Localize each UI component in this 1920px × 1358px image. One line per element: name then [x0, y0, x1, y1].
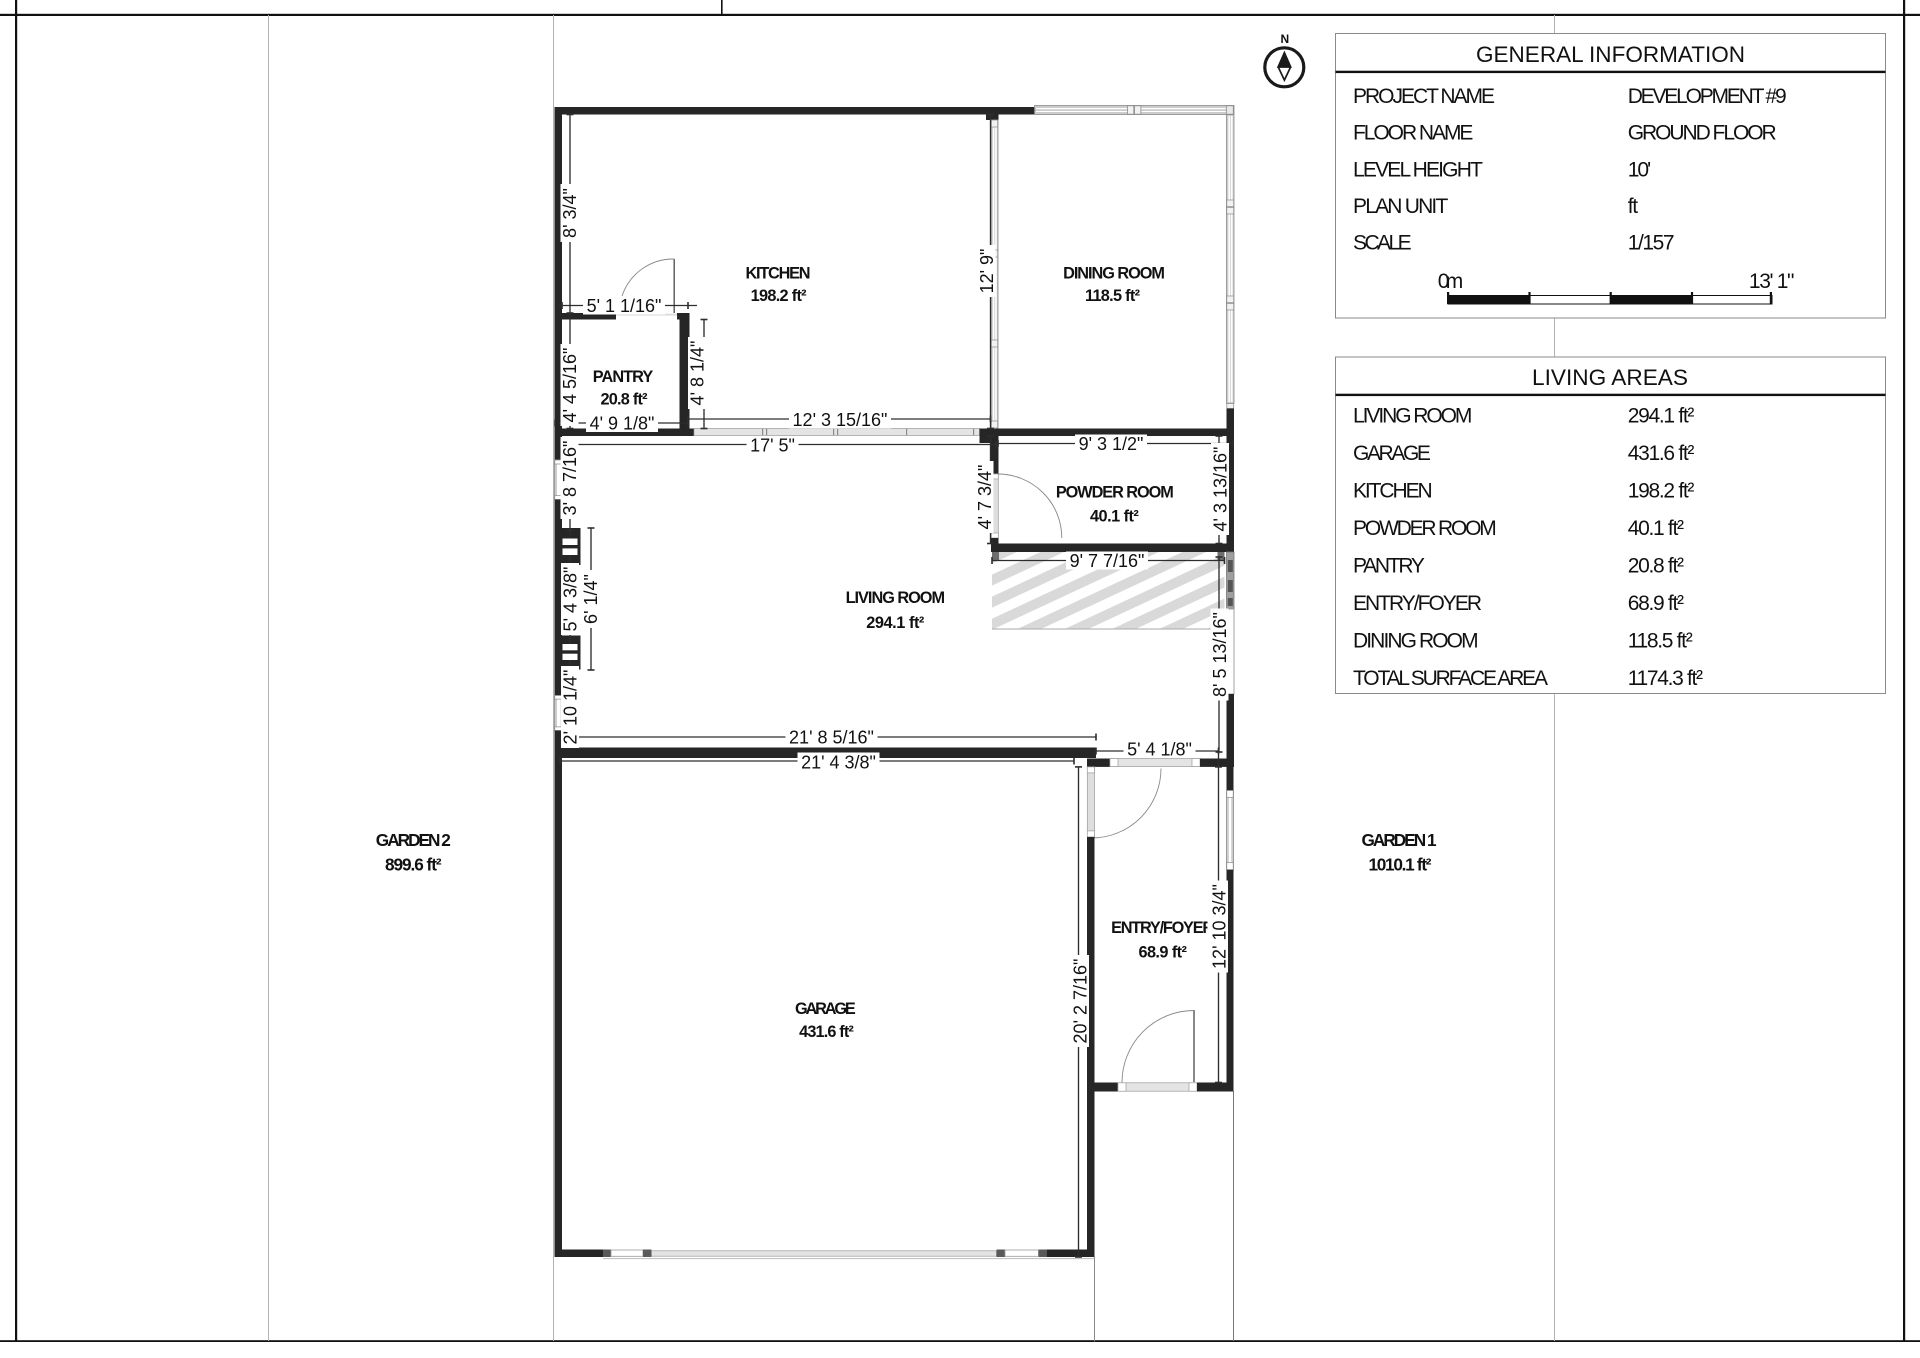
- svg-text:118.5 ft²: 118.5 ft²: [1085, 287, 1141, 305]
- svg-text:GARDEN 2: GARDEN 2: [376, 830, 451, 850]
- svg-text:GARAGE: GARAGE: [795, 1000, 856, 1018]
- svg-text:GENERAL INFORMATION: GENERAL INFORMATION: [1476, 42, 1745, 67]
- svg-text:5' 4 3/8": 5' 4 3/8": [560, 567, 580, 632]
- svg-text:DEVELOPMENT #9: DEVELOPMENT #9: [1628, 85, 1787, 108]
- svg-text:LEVEL HEIGHT: LEVEL HEIGHT: [1353, 158, 1483, 181]
- svg-text:DINING ROOM: DINING ROOM: [1063, 265, 1165, 283]
- svg-text:LIVING AREAS: LIVING AREAS: [1532, 365, 1688, 390]
- svg-text:198.2 ft²: 198.2 ft²: [751, 287, 808, 305]
- svg-text:68.9 ft²: 68.9 ft²: [1138, 944, 1187, 962]
- svg-text:1174.3 ft²: 1174.3 ft²: [1628, 667, 1703, 690]
- svg-text:431.6 ft²: 431.6 ft²: [799, 1023, 854, 1041]
- svg-text:0m: 0m: [1438, 270, 1464, 293]
- svg-text:LIVING ROOM: LIVING ROOM: [846, 589, 945, 607]
- svg-text:899.6 ft²: 899.6 ft²: [385, 854, 442, 874]
- svg-text:8' 3/4": 8' 3/4": [560, 188, 580, 238]
- svg-text:GARDEN 1: GARDEN 1: [1362, 830, 1437, 850]
- svg-text:PANTRY: PANTRY: [1353, 554, 1425, 577]
- svg-text:4' 8 1/4": 4' 8 1/4": [687, 341, 707, 406]
- svg-text:5' 1 1/16": 5' 1 1/16": [587, 296, 662, 316]
- svg-text:LIVING ROOM: LIVING ROOM: [1353, 404, 1472, 427]
- svg-text:20.8 ft²: 20.8 ft²: [1628, 554, 1684, 577]
- svg-text:ft: ft: [1628, 195, 1639, 218]
- svg-text:118.5 ft²: 118.5 ft²: [1628, 629, 1693, 652]
- svg-text:21' 8 5/16": 21' 8 5/16": [789, 727, 874, 747]
- svg-text:9' 3 1/2": 9' 3 1/2": [1079, 434, 1144, 454]
- svg-text:10': 10': [1628, 158, 1651, 181]
- svg-text:FLOOR NAME: FLOOR NAME: [1353, 122, 1473, 145]
- svg-text:198.2 ft²: 198.2 ft²: [1628, 479, 1695, 502]
- svg-text:20' 2 7/16": 20' 2 7/16": [1070, 959, 1090, 1044]
- svg-text:21' 4 3/8": 21' 4 3/8": [801, 752, 876, 772]
- svg-text:9' 7 7/16": 9' 7 7/16": [1070, 551, 1145, 571]
- svg-text:TOTAL SURFACE AREA: TOTAL SURFACE AREA: [1353, 667, 1548, 690]
- svg-text:13' 1": 13' 1": [1749, 270, 1795, 293]
- svg-text:431.6 ft²: 431.6 ft²: [1628, 442, 1695, 465]
- svg-text:1/157: 1/157: [1628, 232, 1675, 255]
- svg-text:12' 9": 12' 9": [977, 249, 997, 294]
- svg-text:PANTRY: PANTRY: [593, 368, 654, 386]
- svg-text:GARAGE: GARAGE: [1353, 442, 1431, 465]
- svg-text:N: N: [1280, 32, 1289, 46]
- svg-text:8' 5 13/16": 8' 5 13/16": [1210, 612, 1230, 697]
- svg-text:17' 5": 17' 5": [750, 435, 795, 455]
- svg-text:4' 9 1/8": 4' 9 1/8": [590, 413, 655, 433]
- svg-text:DINING ROOM: DINING ROOM: [1353, 629, 1479, 652]
- svg-text:PROJECT NAME: PROJECT NAME: [1353, 85, 1495, 108]
- svg-text:5' 4 1/8": 5' 4 1/8": [1127, 739, 1192, 759]
- svg-text:4' 3 13/16": 4' 3 13/16": [1210, 447, 1230, 532]
- svg-text:3' 8 7/16": 3' 8 7/16": [560, 441, 580, 516]
- svg-text:POWDER ROOM: POWDER ROOM: [1353, 517, 1497, 540]
- svg-text:4' 4 5/16": 4' 4 5/16": [560, 348, 580, 423]
- svg-text:294.1 ft²: 294.1 ft²: [866, 614, 925, 632]
- svg-text:ENTRY/FOYER: ENTRY/FOYER: [1353, 592, 1482, 615]
- svg-text:KITCHEN: KITCHEN: [1353, 479, 1433, 502]
- svg-text:12' 10 3/4": 12' 10 3/4": [1209, 884, 1229, 969]
- svg-text:20.8 ft²: 20.8 ft²: [600, 390, 648, 408]
- svg-text:4' 7 3/4": 4' 7 3/4": [975, 465, 995, 530]
- svg-text:68.9 ft²: 68.9 ft²: [1628, 592, 1684, 615]
- svg-text:40.1 ft²: 40.1 ft²: [1090, 508, 1139, 526]
- svg-text:40.1 ft²: 40.1 ft²: [1628, 517, 1684, 540]
- svg-text:ENTRY/FOYER: ENTRY/FOYER: [1111, 919, 1214, 937]
- svg-text:1010.1 ft²: 1010.1 ft²: [1369, 854, 1432, 874]
- svg-text:GROUND FLOOR: GROUND FLOOR: [1628, 122, 1777, 145]
- svg-text:SCALE: SCALE: [1353, 232, 1412, 255]
- svg-text:6' 1/4": 6' 1/4": [581, 574, 601, 624]
- svg-text:KITCHEN: KITCHEN: [746, 265, 811, 283]
- svg-text:12' 3 15/16": 12' 3 15/16": [793, 410, 888, 430]
- svg-text:294.1 ft²: 294.1 ft²: [1628, 404, 1695, 427]
- svg-text:2' 10 1/4": 2' 10 1/4": [560, 670, 580, 745]
- svg-text:POWDER ROOM: POWDER ROOM: [1056, 483, 1174, 501]
- svg-text:PLAN UNIT: PLAN UNIT: [1353, 195, 1448, 218]
